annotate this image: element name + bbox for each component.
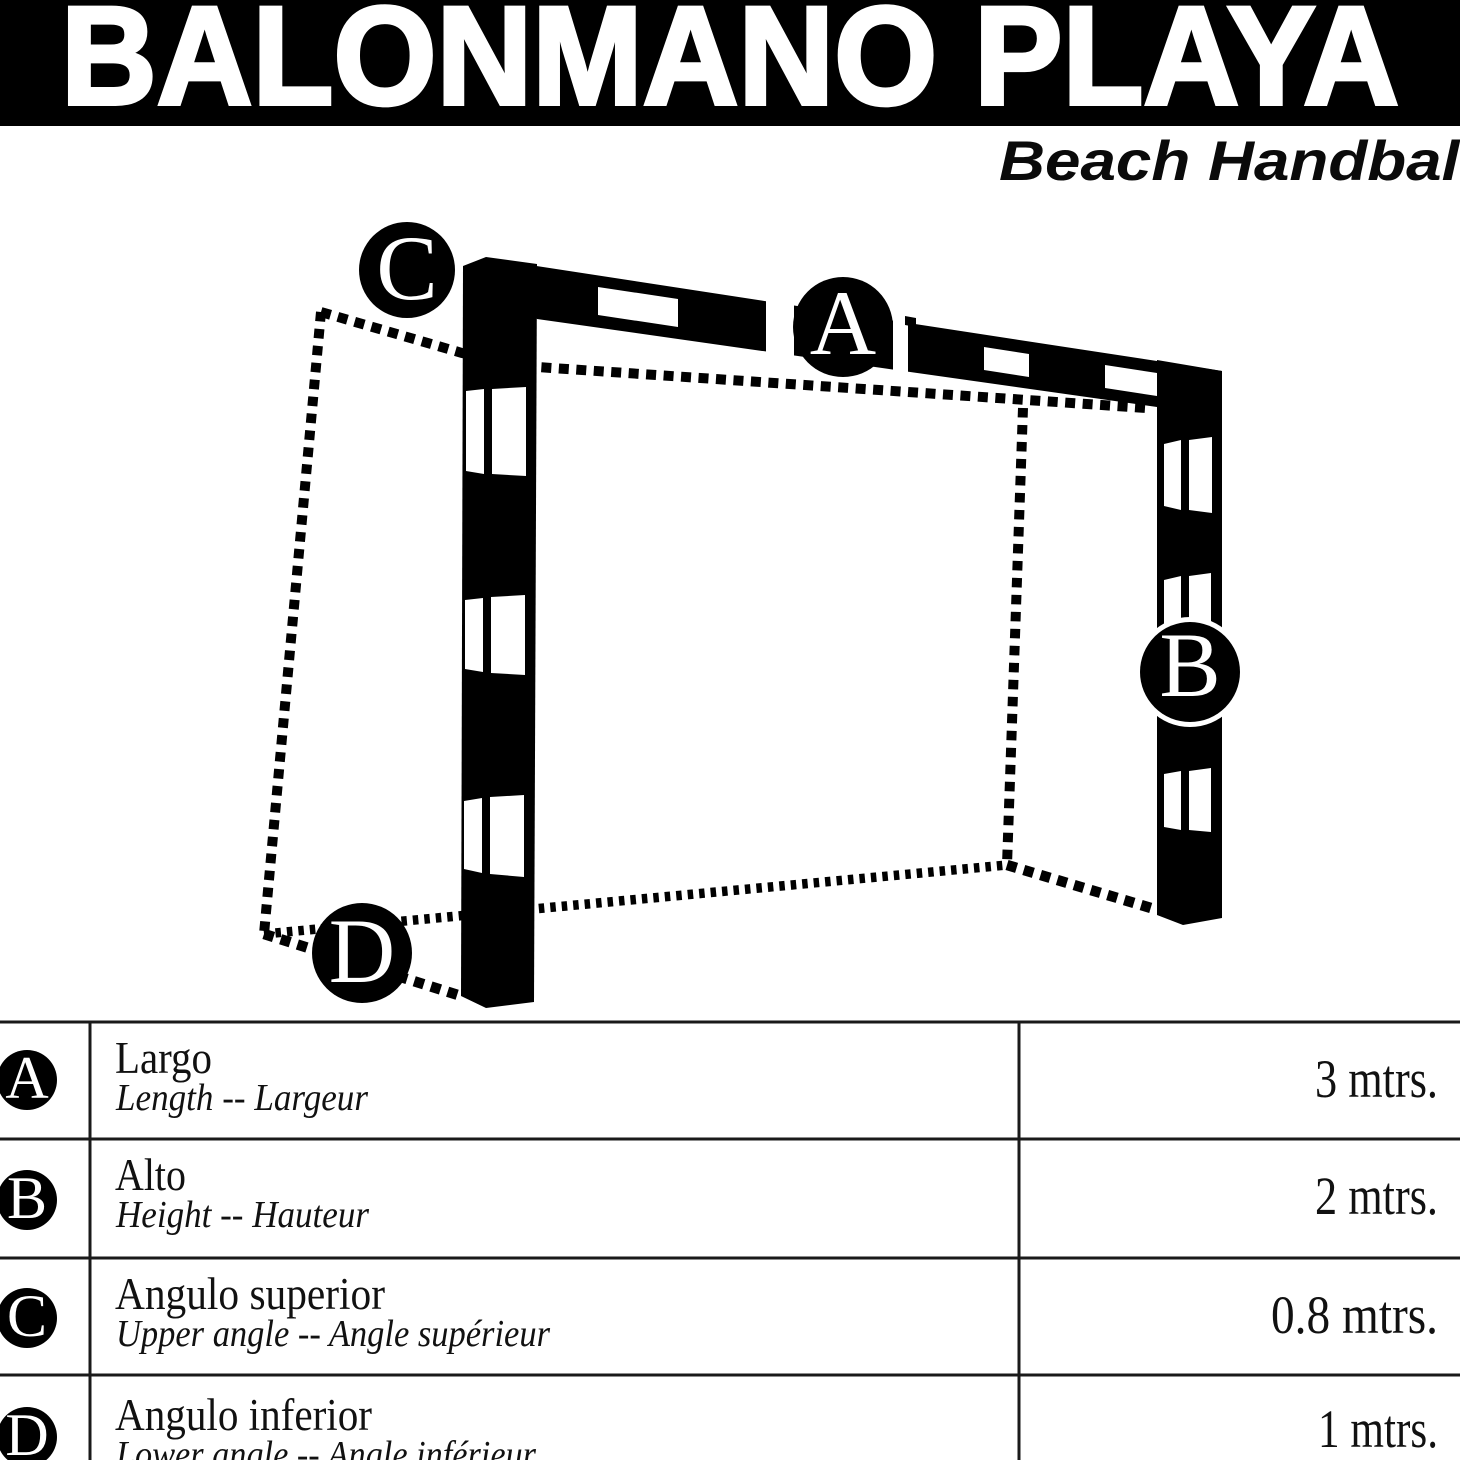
svg-text:A: A [5,1045,48,1111]
svg-text:Angulo inferior: Angulo inferior [115,1390,372,1440]
svg-text:Height -- Hauteur: Height -- Hauteur [115,1194,369,1236]
svg-text:Beach Handball: Beach Handball [999,129,1460,192]
svg-text:D: D [329,900,395,1002]
svg-text:3 mtrs.: 3 mtrs. [1315,1049,1438,1109]
svg-text:BALONMANO PLAYA: BALONMANO PLAYA [61,0,1399,134]
svg-text:0.8 mtrs.: 0.8 mtrs. [1271,1285,1438,1345]
svg-text:D: D [5,1402,48,1460]
svg-text:C: C [376,217,437,319]
svg-text:Lower angle -- Angle inférieur: Lower angle -- Angle inférieur [115,1434,536,1460]
svg-text:B: B [1159,614,1220,716]
svg-text:Length -- Largeur: Length -- Largeur [115,1077,368,1119]
svg-text:1 mtrs.: 1 mtrs. [1318,1399,1438,1459]
svg-text:Alto: Alto [115,1150,186,1200]
svg-text:Largo: Largo [115,1033,212,1083]
svg-text:Upper angle -- Angle supérieur: Upper angle -- Angle supérieur [116,1313,550,1355]
svg-text:C: C [7,1283,47,1349]
svg-text:2 mtrs.: 2 mtrs. [1315,1166,1438,1226]
svg-text:A: A [810,272,876,374]
svg-text:Angulo superior: Angulo superior [115,1269,385,1319]
svg-text:B: B [7,1165,47,1231]
